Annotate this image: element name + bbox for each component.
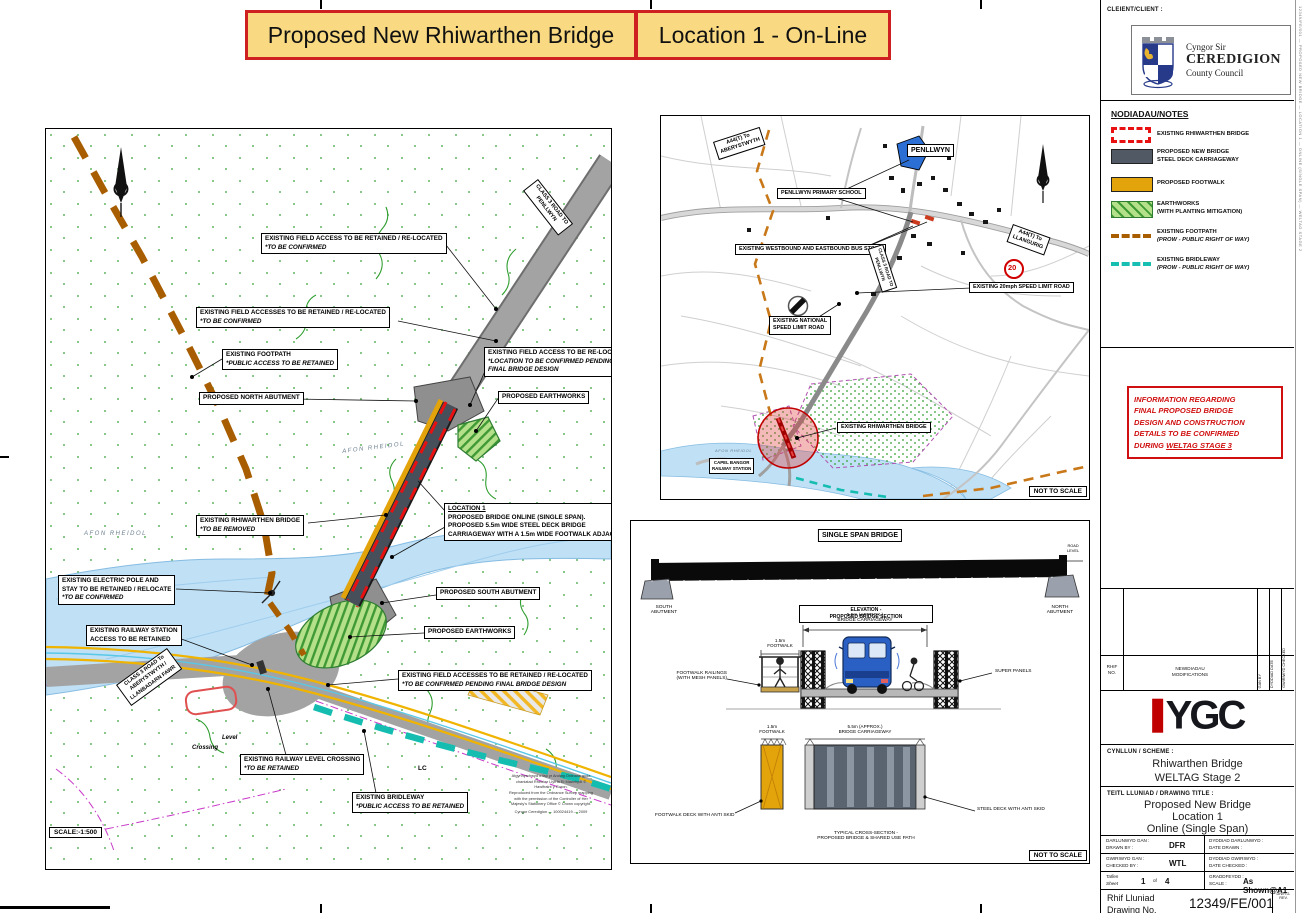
scheme-label: CYNLLUN / SCHEME :	[1107, 749, 1174, 755]
afon-rheidol-label: AFON RHEIDOL	[715, 448, 752, 453]
level-text: Level	[222, 735, 237, 741]
steel-deck-label: STEEL DECK WITH ANTI SKID	[977, 807, 1045, 812]
scheme-section: CYNLLUN / SCHEME : Rhiwarthen Bridge WEL…	[1101, 744, 1294, 786]
rev-box: DIWYG.REV.	[1272, 890, 1294, 913]
register-tick	[650, 904, 652, 913]
drawing-title-line2: Location 1	[1101, 811, 1294, 823]
school-label: PENLLWYN PRIMARY SCHOOL	[777, 188, 866, 199]
rev-col-date: DYDDIAD DATE	[1270, 660, 1274, 688]
drawing-sheet: Proposed New Rhiwarthen Bridge Location …	[0, 0, 1309, 913]
map-label-south-abutment: PROPOSED SOUTH ABUTMENT	[436, 587, 540, 600]
revision-table: RHIFNO. NEWIDIADAUMODIFICATIONS GAN BY D…	[1101, 588, 1294, 690]
south-abutment-label: SOUTHABUTMENT	[641, 605, 687, 615]
map-label-field-access-ne: EXISTING FIELD ACCESS TO BE RETAINED / R…	[261, 233, 447, 254]
register-tick	[980, 0, 982, 9]
footwalk-deck-label: FOOTWALK DECK WITH ANTI SKID	[655, 813, 735, 818]
drawing-title-section: TEITL LLUNIAD / DRAWING TITLE : Proposed…	[1101, 786, 1294, 835]
org-line1: Cyngor Sir	[1186, 42, 1281, 52]
scheme-line2: WELTAG Stage 2	[1101, 772, 1294, 784]
weltag-info-box: INFORMATION REGARDINGFINAL PROPOSED BRID…	[1127, 386, 1283, 459]
bridleway-swatch	[1111, 262, 1151, 266]
org-line2: CEREDIGION	[1186, 52, 1281, 68]
site-plan-map: EXISTING FIELD ACCESS TO BE RETAINED / R…	[45, 128, 612, 870]
road-level-label: ROADLEVEL	[1067, 543, 1079, 553]
map-label-existing-bridge: EXISTING RHIWARTHEN BRIDGE*TO BE REMOVED	[196, 515, 304, 536]
scale-box: SCALE:-1:500	[49, 827, 102, 838]
ygc-section: YGC	[1101, 690, 1294, 744]
info-section: INFORMATION REGARDINGFINAL PROPOSED BRID…	[1101, 347, 1294, 588]
map-label-field-accesses-south: EXISTING FIELD ACCESSES TO BE RETAINED /…	[398, 670, 592, 691]
section-caption: TYPICAL CROSS-SECTION -PROPOSED BRIDGE &…	[781, 831, 951, 841]
not-to-scale-box: NOT TO SCALE	[1029, 850, 1087, 861]
super-panels-label: SUPER PANELS	[995, 669, 1031, 674]
penllwyn-label: PENLLWYN	[907, 144, 954, 157]
national-speed-limit-sign-icon	[789, 297, 808, 316]
north-abutment-label: NORTHABUTMENT	[1037, 605, 1083, 615]
notes-section: NODIADAU/NOTES EXISTING RHIWARTHEN BRIDG…	[1101, 100, 1294, 347]
checked-value: WTL	[1169, 859, 1186, 868]
map-label-electric-pole: EXISTING ELECTRIC POLE ANDSTAY TO BE RET…	[58, 575, 175, 605]
crossing-text: Crossing	[192, 745, 218, 751]
earthworks-swatch	[1111, 201, 1153, 218]
sheet-total: 4	[1165, 877, 1169, 886]
drawn-value: DFR	[1169, 841, 1185, 850]
map-label-location1: LOCATION 1PROPOSED BRIDGE ONLINE (SINGLE…	[444, 503, 612, 541]
title-banner: Proposed New Rhiwarthen Bridge Location …	[245, 10, 891, 60]
map-label-existing-footpath: EXISTING FOOTPATH*PUBLIC ACCESS TO BE RE…	[222, 349, 338, 370]
lc-text: LC	[418, 765, 427, 772]
drawn-row: DARLUNWYD GAN :DRAWN BY : DFR DYDDIAD DA…	[1101, 835, 1294, 853]
national-speed-label: EXISTING NATIONALSPEED LIMIT ROAD	[769, 316, 831, 335]
plot-stamp-strip: 12349/FE/001 — PROPOSED NEW BRIDGE — LOC…	[1295, 0, 1309, 913]
register-tick	[980, 904, 982, 913]
register-tick	[650, 0, 652, 9]
checked-row: GWIRIWYD GAN :CHECKED BY : WTL DYDDIAD G…	[1101, 853, 1294, 871]
sheet-edge-mark	[0, 906, 110, 909]
map-label-level-crossing: EXISTING RAILWAY LEVEL CROSSING*TO BE RE…	[240, 754, 364, 775]
rev-col-no: RHIFNO.	[1101, 664, 1123, 676]
register-tick	[320, 0, 322, 9]
panel-heading: SINGLE SPAN BRIDGE	[818, 529, 902, 542]
ceredigion-crest-icon	[1136, 31, 1180, 89]
title-block-column: CLEIENT/CLIENT : Cyngor Sir CEREDIGION C…	[1100, 0, 1294, 913]
map-label-bridleway: EXISTING BRIDLEWAY*PUBLIC ACCESS TO BE R…	[352, 792, 468, 813]
drawing-title-label: TEITL LLUNIAD / DRAWING TITLE :	[1107, 791, 1214, 797]
speed-20-value: 20	[1008, 263, 1016, 272]
map-label-earthworks-south: PROPOSED EARTHWORKS	[424, 626, 515, 639]
register-tick	[320, 904, 322, 913]
rev-col-mods: NEWIDIADAUMODIFICATIONS	[1123, 666, 1257, 678]
dim-carriageway-bottom: 5.5m (APPROX.)BRIDGE CARRIAGEWAY	[817, 724, 913, 734]
river-name-west: AFON RHEIDOL	[84, 531, 147, 537]
speed20-label: EXISTING 20mph SPEED LIMIT ROAD	[969, 282, 1074, 293]
plot-stamp-text: 12349/FE/001 — PROPOSED NEW BRIDGE — LOC…	[1298, 6, 1303, 252]
sheet-of: of	[1153, 878, 1157, 885]
drawing-title-line1: Proposed New Bridge	[1101, 799, 1294, 811]
dim-footwalk-bottom: 1.5mFOOTWALK	[751, 724, 793, 734]
bridge-detail-panel: SINGLE SPAN BRIDGE SOUTHABUTMENT NORTHAB…	[630, 520, 1090, 864]
existing-bridge-label: EXISTING RHIWARTHEN BRIDGE	[837, 422, 931, 433]
rev-col-checked: GWIRIWYD CHECKED	[1282, 648, 1286, 688]
client-section: CLEIENT/CLIENT : Cyngor Sir CEREDIGION C…	[1101, 3, 1294, 100]
map-label-railway-station: EXISTING RAILWAY STATIONACCESS TO BE RET…	[86, 625, 182, 646]
drawing-number-value: 12349/FE/001	[1189, 896, 1274, 911]
map-label-earthworks-north: PROPOSED EARTHWORKS	[498, 391, 589, 404]
ygc-logo: YGC	[1152, 693, 1244, 738]
footwalk-railings-label: FOOTWALK RAILINGS(WITH MESH PANELS)	[653, 671, 727, 681]
client-label: CLEIENT/CLIENT :	[1107, 7, 1163, 13]
existing-bridge-swatch	[1111, 127, 1151, 143]
dim-footwalk-top: 1.5mFOOTWALK	[759, 638, 801, 648]
bus-stops-label: EXISTING WESTBOUND AND EASTBOUND BUS STO…	[735, 244, 886, 255]
location-plan-linework	[661, 116, 1089, 499]
notes-heading: NODIADAU/NOTES	[1111, 109, 1188, 119]
rev-col-by: GAN BY	[1258, 674, 1262, 688]
sheet-number: 1	[1141, 877, 1145, 886]
dim-carriageway-top: 5.5m (APPROX.)BRIDGE CARRIAGEWAY	[817, 613, 913, 623]
register-tick	[0, 456, 9, 458]
drawing-title-line3: Online (Single Span)	[1101, 823, 1294, 835]
drawing-number-row: Rhif LluniadDrawing No. 12349/FE/001 DIW…	[1101, 889, 1294, 913]
map-label-north-abutment: PROPOSED NORTH ABUTMENT	[199, 392, 304, 405]
banner-title: Proposed New Rhiwarthen Bridge	[245, 10, 636, 60]
new-bridge-swatch	[1111, 149, 1153, 164]
location-plan-map: A44(T) ToABERYSTWYTH PENLLWYN PENLLWYN P…	[660, 115, 1090, 500]
scheme-line1: Rhiwarthen Bridge	[1101, 758, 1294, 770]
footwalk-swatch	[1111, 177, 1153, 192]
banner-subtitle: Location 1 - On-Line	[636, 10, 891, 60]
footpath-swatch	[1111, 234, 1151, 238]
map-label-field-accesses-nw: EXISTING FIELD ACCESSES TO BE RETAINED /…	[196, 307, 390, 328]
ygc-logo-bar	[1152, 699, 1163, 733]
map-label-field-access-relocated: EXISTING FIELD ACCESS TO BE RE-LOCATED*L…	[484, 347, 612, 377]
capel-bangor-station-label: CAPEL BANGORRAILWAY STATION	[709, 458, 754, 474]
not-to-scale-box: NOT TO SCALE	[1029, 486, 1087, 497]
os-copyright-note: Atgynhyrchwyd o fap yr Arolwg Ordnans gy…	[490, 773, 612, 815]
org-line3: County Council	[1186, 68, 1281, 78]
ceredigion-logo: Cyngor Sir CEREDIGION County Council	[1131, 25, 1291, 95]
sheet-scale-row: TaflenSheet 1 of 4 GRADDFEYDD :SCALE : A…	[1101, 871, 1294, 889]
